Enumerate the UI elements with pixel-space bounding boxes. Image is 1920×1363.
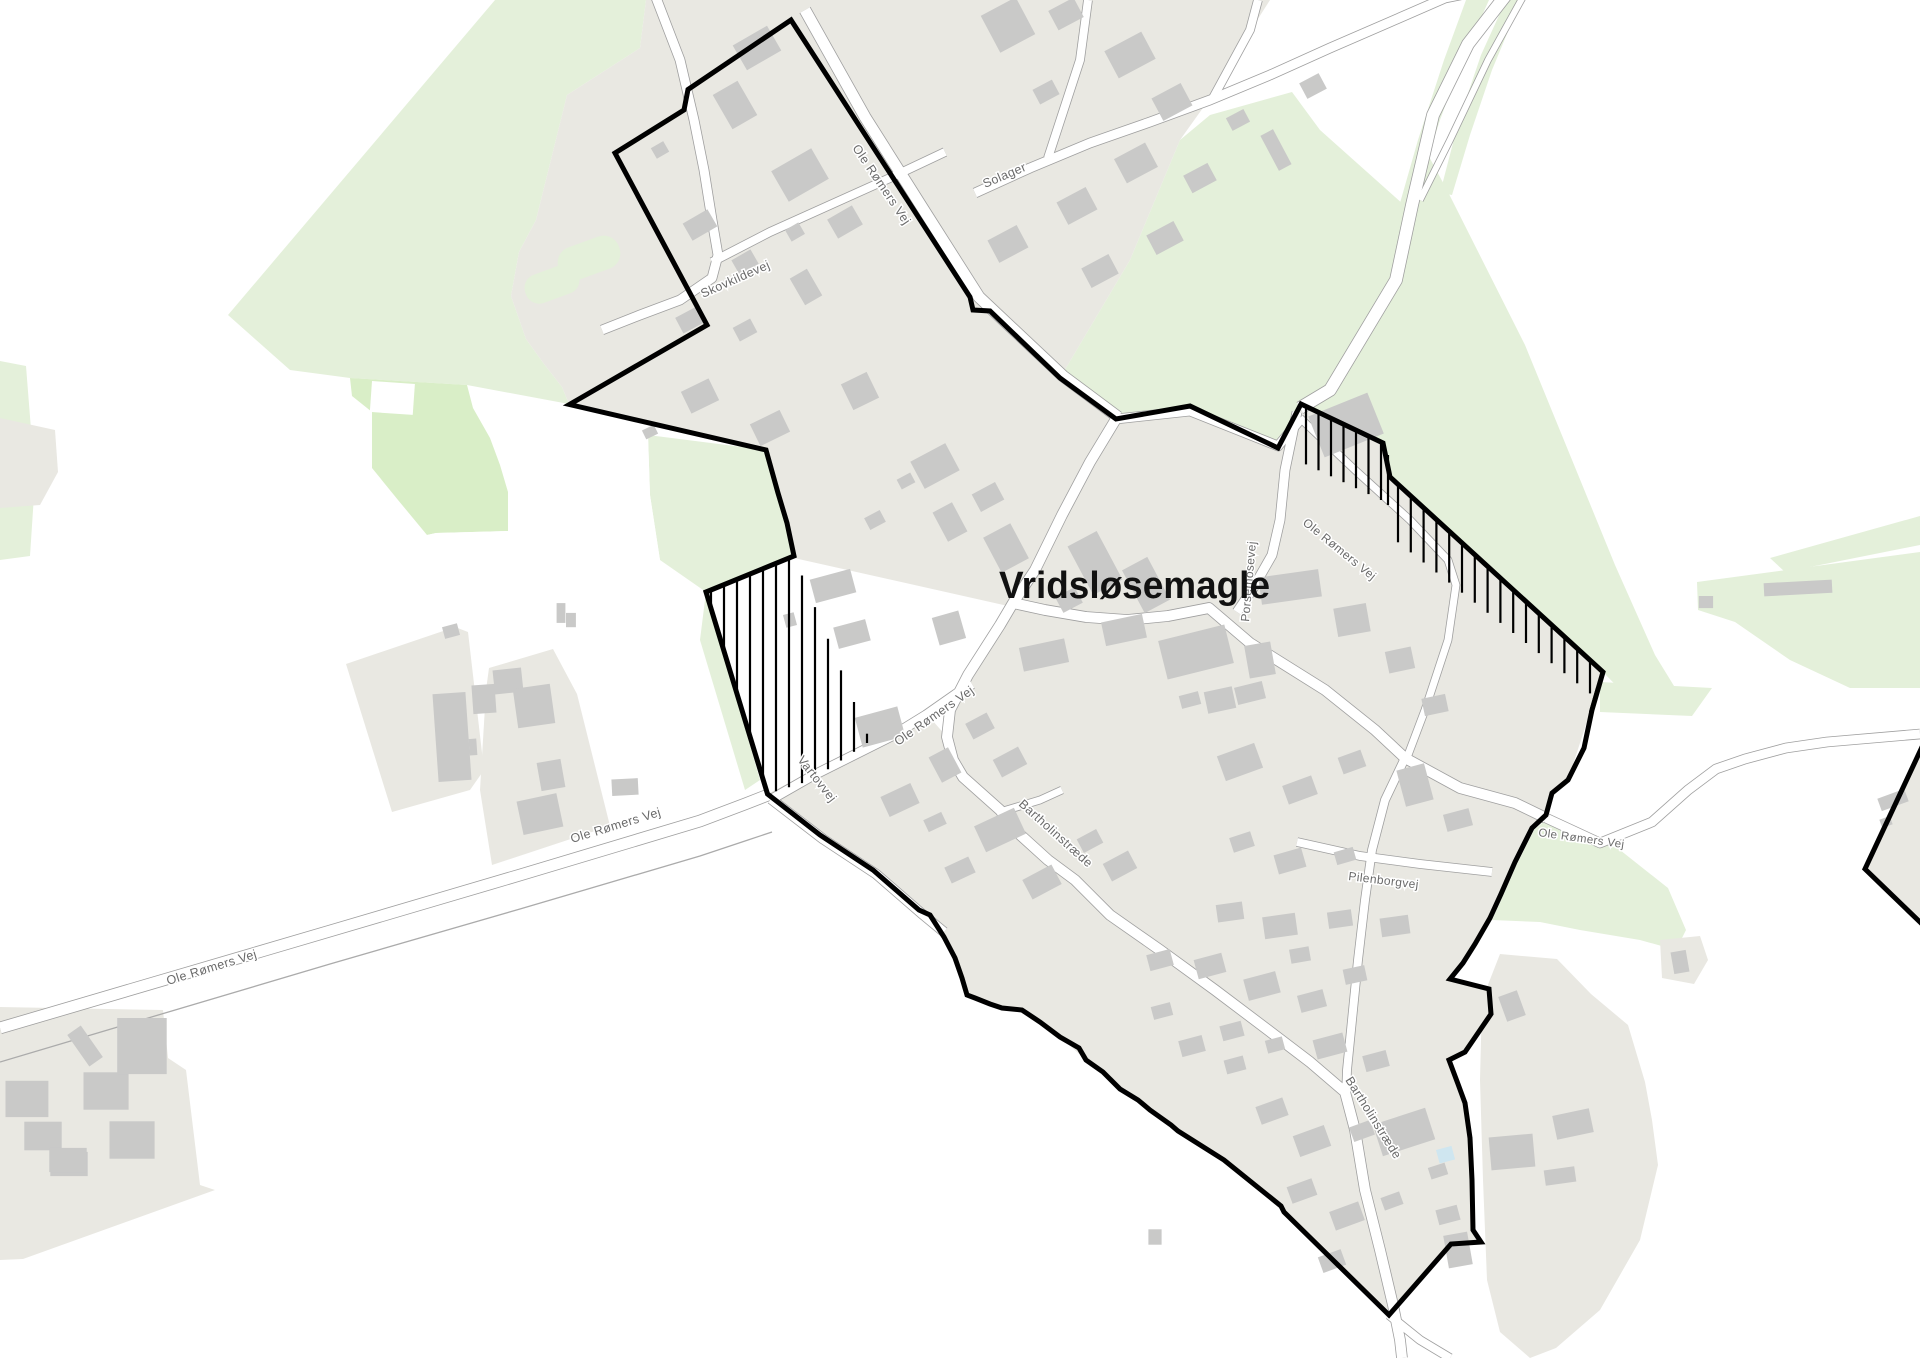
svg-text:Vridsløsemagle: Vridsløsemagle	[999, 565, 1270, 607]
